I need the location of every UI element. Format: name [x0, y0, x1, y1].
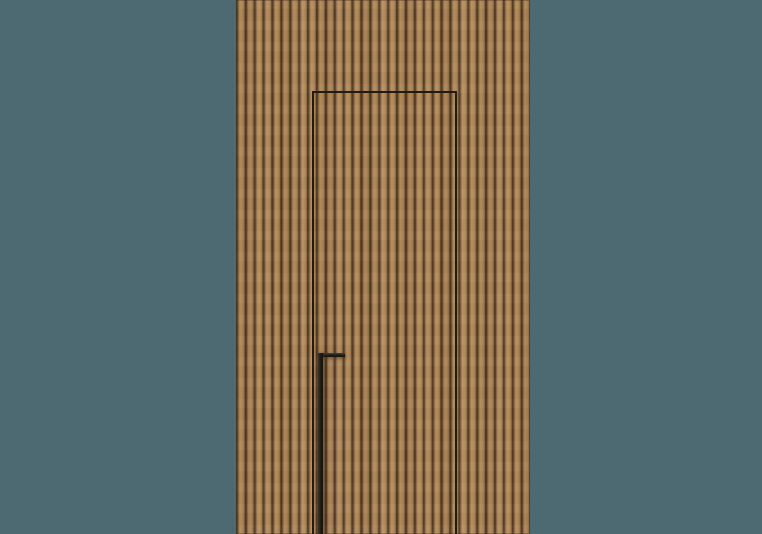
- door-handle-grip: [318, 353, 324, 534]
- concealed-door-seam: [312, 91, 457, 534]
- wood-slat-wall-panel: [236, 0, 530, 534]
- studio-background: [0, 0, 762, 534]
